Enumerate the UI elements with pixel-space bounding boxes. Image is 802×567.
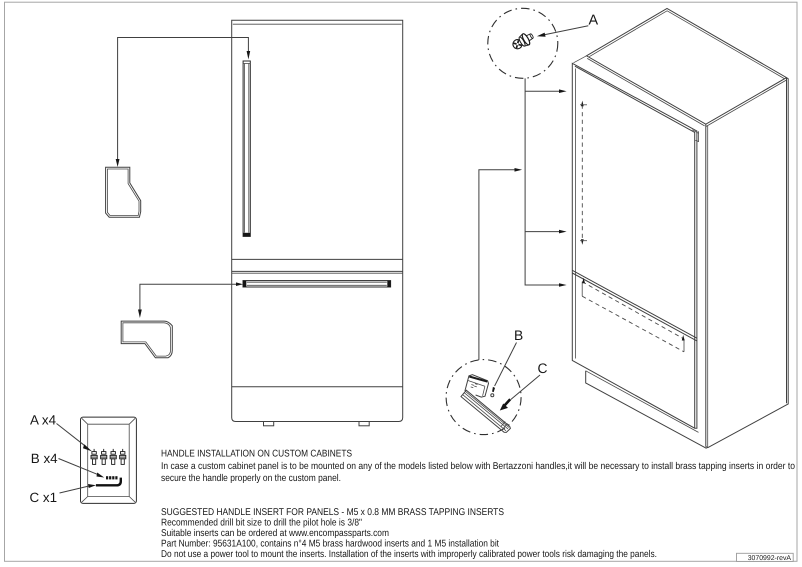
- svg-text:Do not use a power tool to mou: Do not use a power tool to mount the ins…: [161, 549, 657, 560]
- svg-text:Suitable inserts can be ordere: Suitable inserts can be ordered at www.e…: [161, 528, 389, 539]
- svg-text:Recommended drill bit size to: Recommended drill bit size to drill the …: [161, 518, 362, 529]
- svg-text:Part Number: 95631A100, contai: Part Number: 95631A100, contains n°4 M5 …: [161, 538, 499, 549]
- svg-text:3070992-revA: 3070992-revA: [748, 555, 792, 562]
- svg-text:B x4: B x4: [31, 451, 58, 466]
- svg-text:C x1: C x1: [30, 490, 58, 505]
- svg-text:B: B: [514, 328, 523, 343]
- svg-text:secure the handle properly on: secure the handle properly on the custom…: [161, 473, 341, 484]
- svg-text:In case a custom cabinet panel: In case a custom cabinet panel is to be …: [161, 461, 795, 472]
- svg-text:HANDLE INSTALLATION ON CUSTOM: HANDLE INSTALLATION ON CUSTOM CABINETS: [161, 449, 352, 460]
- svg-text:C: C: [538, 361, 548, 376]
- svg-text:SUGGESTED HANDLE INSERT FOR PA: SUGGESTED HANDLE INSERT FOR PANELS - M5 …: [161, 507, 504, 518]
- svg-text:A: A: [589, 13, 599, 29]
- svg-text:A x4: A x4: [30, 412, 57, 427]
